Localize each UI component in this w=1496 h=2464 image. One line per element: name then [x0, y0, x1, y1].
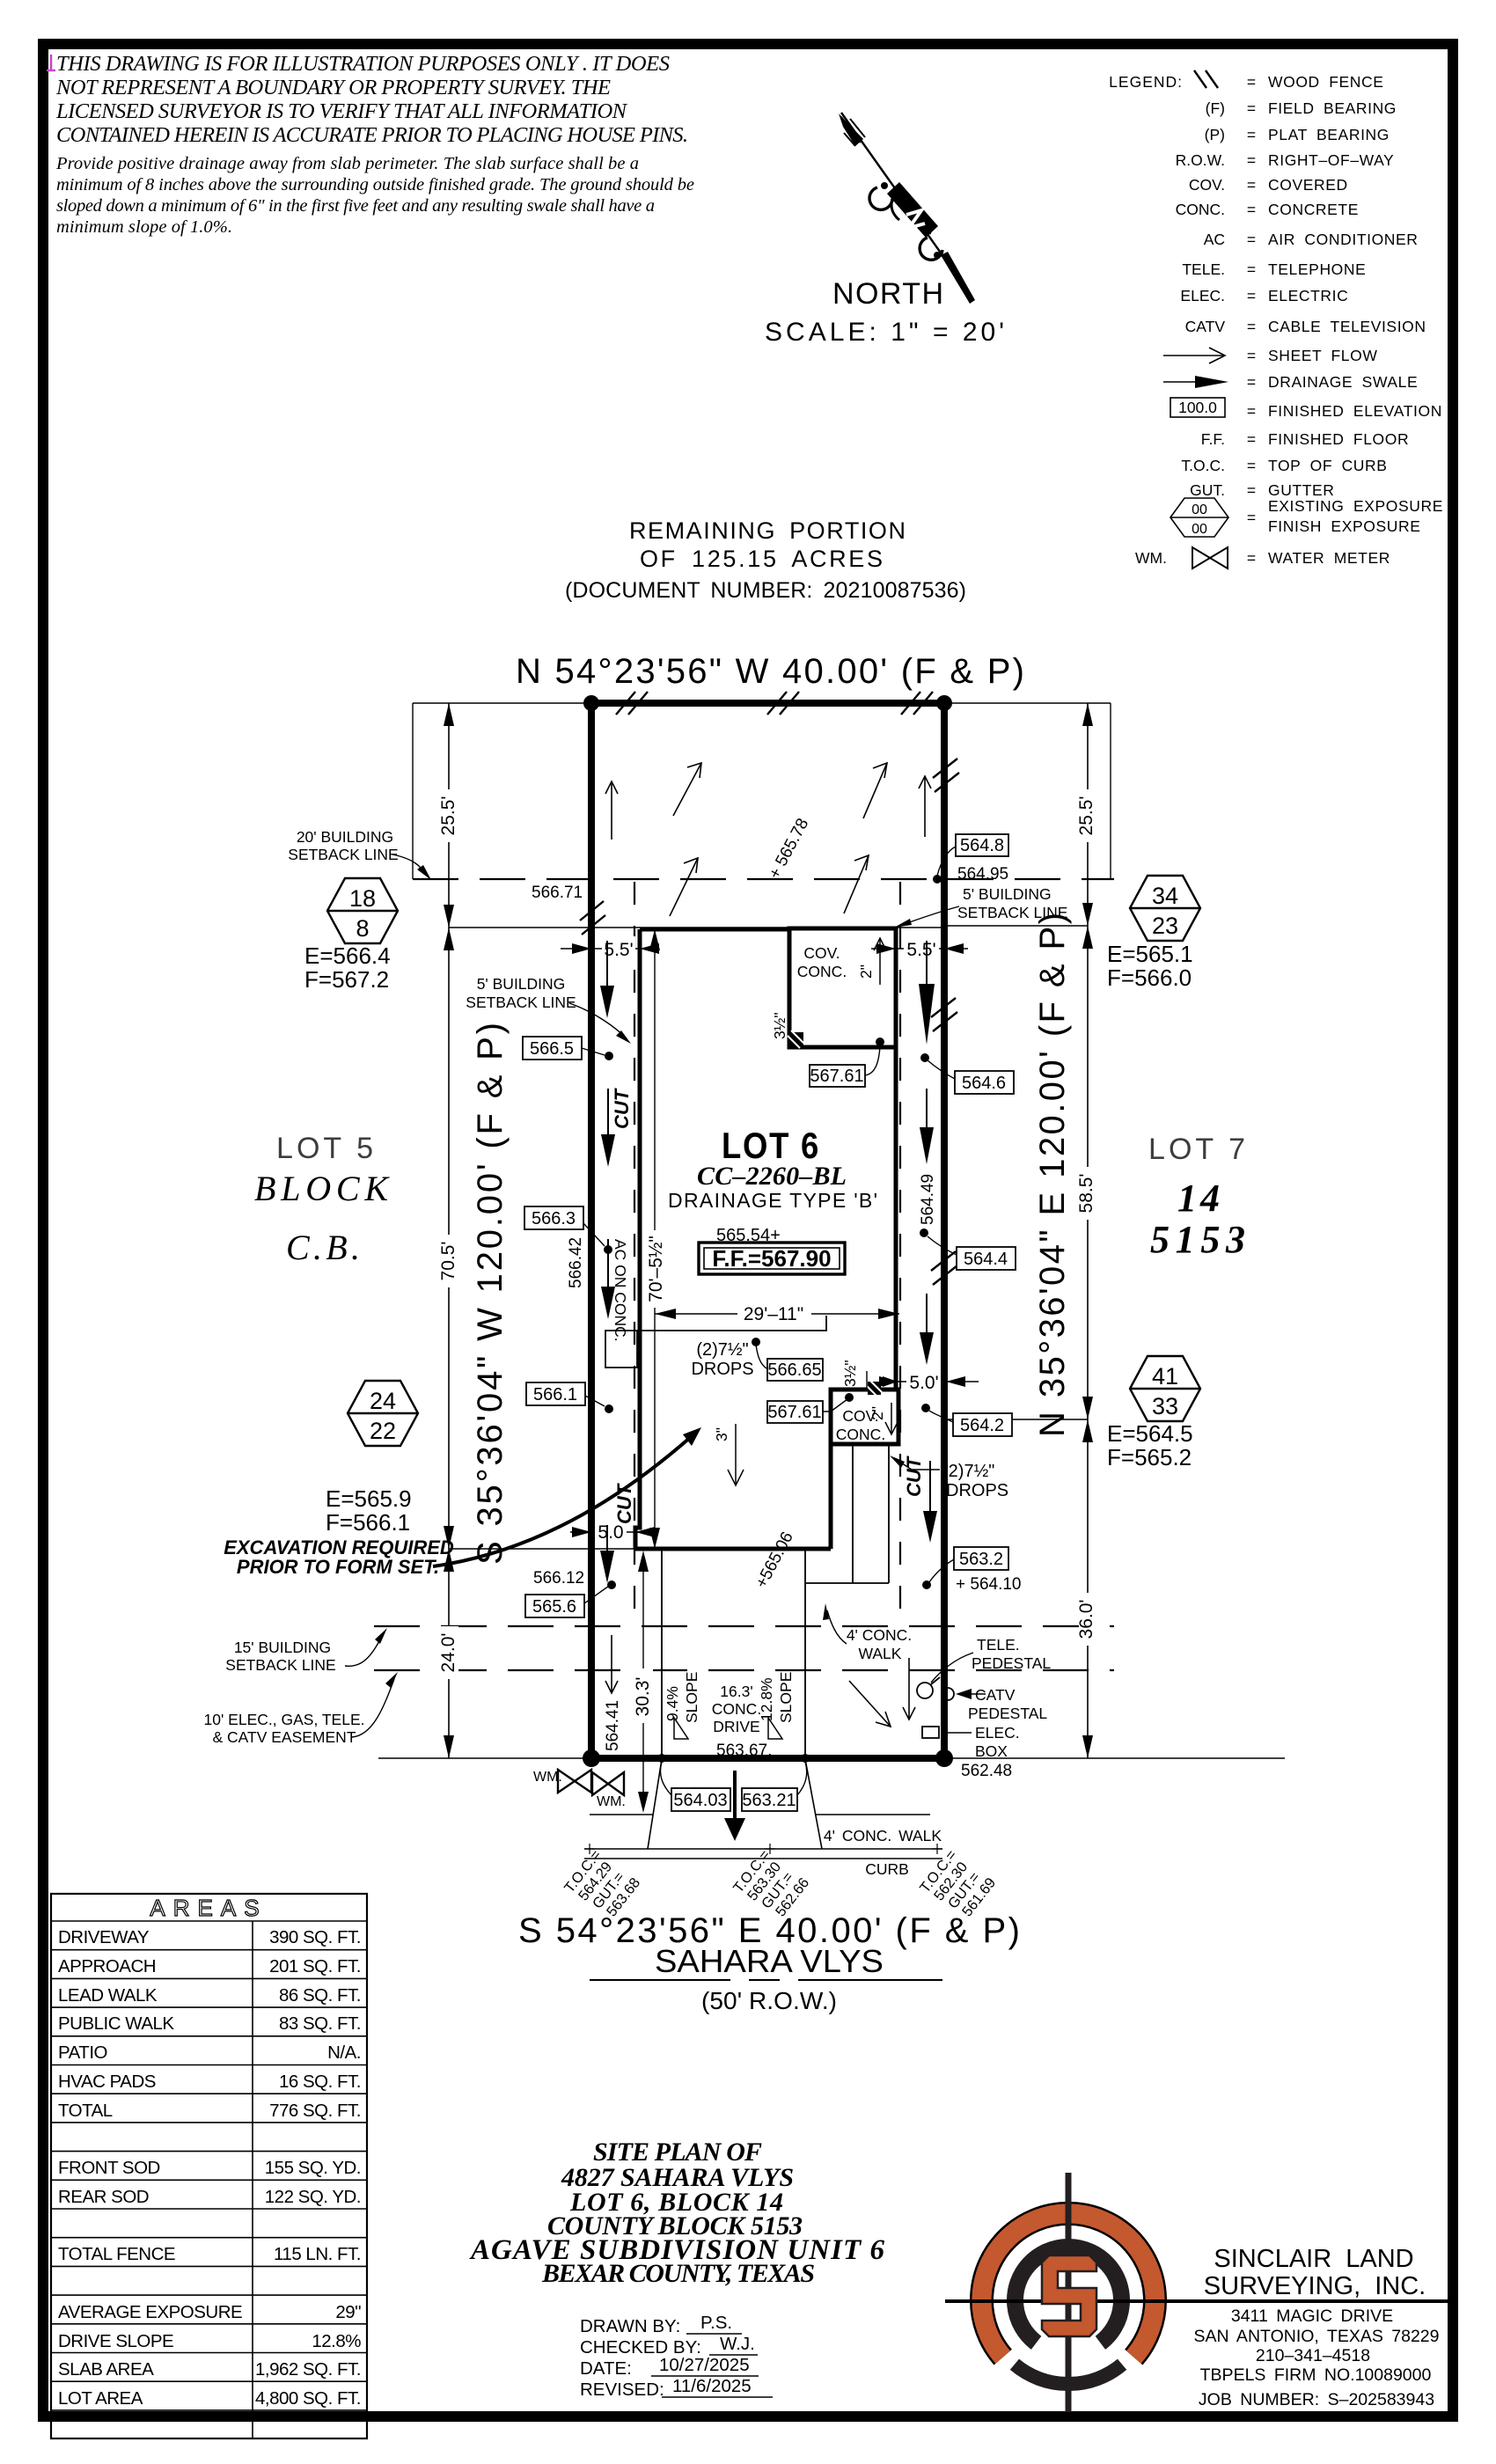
svg-text:=: =: [1247, 347, 1256, 364]
svg-text:E=565.1: E=565.1: [1107, 941, 1193, 967]
svg-text:(2)7½": (2)7½": [696, 1340, 748, 1360]
svg-text:E=564.5: E=564.5: [1107, 1420, 1193, 1447]
svg-text:COVERED: COVERED: [1268, 176, 1348, 194]
svg-text:3½": 3½": [841, 1360, 859, 1387]
svg-text:+565.06: +565.06: [752, 1529, 797, 1591]
svg-text:SCALE: 1" = 20': SCALE: 1" = 20': [765, 318, 1004, 347]
svg-text:LEAD WALK: LEAD WALK: [58, 1985, 158, 2006]
svg-text:15' BUILDING: 15' BUILDING: [234, 1639, 331, 1656]
svg-text:AVERAGE EXPOSURE: AVERAGE EXPOSURE: [58, 2302, 242, 2322]
svg-text:10' ELEC., GAS, TELE.: 10' ELEC., GAS, TELE.: [204, 1711, 365, 1728]
svg-text:390 SQ. FT.: 390 SQ. FT.: [269, 1927, 361, 1947]
svg-text:=: =: [1247, 457, 1256, 474]
svg-text:=: =: [1247, 549, 1256, 567]
svg-text:(50' R.O.W.): (50' R.O.W.): [701, 1987, 837, 2014]
svg-text:CURB: CURB: [865, 1860, 909, 1878]
svg-text:TOTAL FENCE: TOTAL FENCE: [58, 2244, 175, 2264]
svg-text:TOP OF CURB: TOP OF CURB: [1268, 457, 1388, 474]
svg-text:565.6: 565.6: [532, 1597, 576, 1617]
svg-text:115 LN. FT.: 115 LN. FT.: [274, 2244, 361, 2264]
svg-text:SHEET FLOW: SHEET FLOW: [1268, 347, 1377, 364]
svg-text:+ 565.78: + 565.78: [766, 816, 813, 883]
svg-text:WOOD FENCE: WOOD FENCE: [1268, 73, 1384, 91]
svg-text:FINISH EXPOSURE: FINISH EXPOSURE: [1268, 517, 1420, 535]
svg-text:F.F.=567.90: F.F.=567.90: [712, 1245, 831, 1272]
svg-text:18: 18: [349, 885, 376, 912]
svg-text:4' CONC. WALK: 4' CONC. WALK: [824, 1827, 942, 1844]
svg-text:N 54°23'56" W 40.00' (F & P): N 54°23'56" W 40.00' (F & P): [516, 652, 1024, 691]
svg-text:SAN ANTONIO, TEXAS 78229: SAN ANTONIO, TEXAS 78229: [1194, 2327, 1440, 2346]
svg-text:TELE.: TELE.: [1182, 260, 1225, 278]
svg-text:WM.: WM.: [597, 1794, 626, 1809]
svg-text:25.5': 25.5': [1076, 796, 1096, 836]
svg-text:24.0': 24.0': [438, 1633, 458, 1673]
svg-text:5.0: 5.0: [598, 1522, 623, 1543]
svg-text:70.5': 70.5': [438, 1242, 458, 1281]
svg-text:566.1: 566.1: [533, 1385, 577, 1404]
svg-text:CONCRETE: CONCRETE: [1268, 201, 1359, 218]
svg-text:(F): (F): [1206, 99, 1225, 117]
svg-text:5' BUILDING: 5' BUILDING: [477, 975, 566, 993]
svg-text:23: 23: [1152, 913, 1178, 939]
svg-text:BEXAR COUNTY, TEXAS: BEXAR COUNTY, TEXAS: [541, 2259, 815, 2288]
svg-text:564.2: 564.2: [960, 1416, 1004, 1435]
svg-text:SLOPE: SLOPE: [683, 1672, 700, 1723]
svg-text:562.48: 562.48: [961, 1762, 1012, 1780]
svg-text:LICENSED SURVEYOR IS TO VERIFY: LICENSED SURVEYOR IS TO VERIFY THAT ALL …: [55, 99, 628, 123]
svg-text:WM.: WM.: [1135, 549, 1167, 567]
svg-text:3411 MAGIC DRIVE: 3411 MAGIC DRIVE: [1231, 2306, 1393, 2326]
svg-text:APPROACH: APPROACH: [58, 1956, 156, 1976]
svg-text:=: =: [1247, 99, 1256, 117]
svg-text:201 SQ. FT.: 201 SQ. FT.: [269, 1956, 361, 1976]
svg-text:DROPS: DROPS: [946, 1481, 1008, 1500]
svg-text:86 SQ. FT.: 86 SQ. FT.: [279, 1985, 361, 2006]
svg-text:TBPELS FIRM NO.10089000: TBPELS FIRM NO.10089000: [1200, 2365, 1432, 2385]
svg-text:210–341–4518: 210–341–4518: [1256, 2346, 1370, 2365]
svg-text:5.5': 5.5': [604, 940, 633, 960]
svg-text:SLOPE: SLOPE: [777, 1672, 795, 1723]
svg-text:00: 00: [1192, 522, 1207, 537]
svg-text:SINCLAIR LAND: SINCLAIR LAND: [1214, 2245, 1413, 2273]
svg-text:29'–11": 29'–11": [744, 1304, 803, 1324]
svg-text:N 35°36'04" E 120.00' (F & P): N 35°36'04" E 120.00' (F & P): [1033, 913, 1072, 1437]
svg-text:2": 2": [857, 964, 875, 979]
svg-text:16.3': 16.3': [720, 1683, 752, 1700]
svg-text:11/6/2025: 11/6/2025: [672, 2376, 752, 2396]
svg-text:FINISHED FLOOR: FINISHED FLOOR: [1268, 430, 1409, 448]
svg-text:LEGEND:: LEGEND:: [1109, 73, 1183, 91]
svg-text:BOX: BOX: [975, 1742, 1008, 1760]
svg-text:W.J.: W.J.: [720, 2334, 755, 2354]
svg-text:567.61: 567.61: [767, 1403, 821, 1422]
svg-text:DRIVEWAY: DRIVEWAY: [58, 1927, 150, 1947]
svg-text:122 SQ. YD.: 122 SQ. YD.: [265, 2187, 361, 2207]
svg-text:PRIOR TO FORM SET.: PRIOR TO FORM SET.: [237, 1556, 439, 1578]
svg-text:EXISTING EXPOSURE: EXISTING EXPOSURE: [1268, 497, 1443, 515]
svg-text:SETBACK LINE: SETBACK LINE: [225, 1656, 335, 1674]
svg-text:JOB NUMBER: S–202583943: JOB NUMBER: S–202583943: [1199, 2390, 1434, 2409]
svg-text:REAR SOD: REAR SOD: [58, 2187, 149, 2207]
svg-text:29": 29": [335, 2302, 361, 2322]
svg-text:CONC.: CONC.: [1176, 201, 1225, 218]
svg-text:12.8%: 12.8%: [312, 2331, 361, 2351]
svg-text:F=566.0: F=566.0: [1107, 964, 1192, 991]
svg-text:LOT 6: LOT 6: [722, 1125, 820, 1166]
svg-text:CONC.: CONC.: [712, 1700, 761, 1718]
svg-text:LOT 5: LOT 5: [276, 1132, 373, 1165]
svg-text:R.O.W.: R.O.W.: [1176, 151, 1225, 169]
svg-text:WM.: WM.: [533, 1770, 562, 1785]
svg-text:FINISHED ELEVATION: FINISHED ELEVATION: [1268, 402, 1442, 420]
svg-text:8: 8: [356, 915, 369, 942]
svg-text:566.5: 566.5: [530, 1039, 574, 1059]
svg-text:=: =: [1247, 287, 1256, 304]
svg-text:CABLE TELEVISION: CABLE TELEVISION: [1268, 318, 1426, 335]
svg-text:BLOCK: BLOCK: [254, 1169, 390, 1208]
svg-text:564.4: 564.4: [964, 1250, 1008, 1269]
svg-text:CONC.: CONC.: [836, 1426, 885, 1443]
svg-text:155 SQ. YD.: 155 SQ. YD.: [265, 2158, 361, 2178]
svg-text:=: =: [1247, 402, 1256, 420]
svg-text:566.3: 566.3: [532, 1209, 576, 1228]
svg-text:=: =: [1247, 430, 1256, 448]
svg-text:1,962 SQ. FT.: 1,962 SQ. FT.: [255, 2359, 361, 2380]
svg-text:LOT 7: LOT 7: [1148, 1133, 1245, 1166]
svg-text:GUT.: GUT.: [1190, 481, 1225, 499]
svg-text:minimum of 8 inches above the: minimum of 8 inches above the surroundin…: [56, 175, 694, 194]
svg-text:DROPS: DROPS: [691, 1360, 753, 1379]
svg-text:22: 22: [370, 1418, 396, 1444]
svg-text:=: =: [1247, 231, 1256, 248]
svg-text:E=565.9: E=565.9: [326, 1485, 412, 1512]
svg-text:SETBACK LINE: SETBACK LINE: [957, 904, 1067, 921]
svg-text:DRAINAGE SWALE: DRAINAGE SWALE: [1268, 373, 1418, 391]
svg-text:+ 564.10: + 564.10: [956, 1575, 1022, 1594]
svg-text:Provide positive drainage away: Provide positive drainage away from slab…: [55, 154, 639, 173]
svg-text:5' BUILDING: 5' BUILDING: [963, 885, 1052, 903]
svg-text:WALK: WALK: [859, 1645, 902, 1662]
svg-text:SETBACK LINE: SETBACK LINE: [466, 994, 576, 1011]
svg-text:=: =: [1247, 201, 1256, 218]
svg-text:83 SQ. FT.: 83 SQ. FT.: [279, 2013, 361, 2034]
svg-text:DRIVE: DRIVE: [713, 1718, 759, 1735]
svg-text:9.4%: 9.4%: [664, 1686, 681, 1721]
svg-text:PEDESTAL: PEDESTAL: [972, 1654, 1051, 1672]
svg-text:70'–5½": 70'–5½": [646, 1236, 666, 1302]
svg-text:24: 24: [370, 1388, 396, 1414]
svg-text:=: =: [1247, 318, 1256, 335]
svg-text:ELEC.: ELEC.: [975, 1724, 1020, 1742]
svg-text:PLAT BEARING: PLAT BEARING: [1268, 126, 1390, 143]
svg-text:(DOCUMENT NUMBER: 2021008753: (DOCUMENT NUMBER: 20210087536): [565, 578, 966, 603]
svg-text:ELEC.: ELEC.: [1180, 287, 1225, 304]
svg-text:25.5': 25.5': [438, 796, 458, 836]
svg-text:5153: 5153: [1150, 1218, 1245, 1261]
svg-text:CATV: CATV: [1185, 318, 1226, 335]
svg-text:16 SQ. FT.: 16 SQ. FT.: [279, 2072, 361, 2092]
svg-text:WATER METER: WATER METER: [1268, 549, 1390, 567]
svg-text:C.B.: C.B.: [286, 1228, 360, 1267]
svg-text:=: =: [1247, 176, 1256, 194]
svg-text:=: =: [1247, 509, 1256, 526]
svg-text:TOTAL: TOTAL: [58, 2101, 113, 2121]
svg-text:14: 14: [1177, 1177, 1220, 1220]
svg-text:COV.: COV.: [803, 944, 840, 962]
svg-text:CUT: CUT: [611, 1088, 633, 1129]
svg-text:AREAS: AREAS: [150, 1895, 267, 1921]
svg-text:CC–2260–BL: CC–2260–BL: [697, 1162, 847, 1191]
svg-text:564.49: 564.49: [919, 1174, 937, 1225]
svg-text:DRAWN BY:: DRAWN BY:: [580, 2316, 680, 2336]
svg-text:4,800 SQ. FT.: 4,800 SQ. FT.: [255, 2388, 361, 2409]
svg-text:CUT: CUT: [903, 1456, 925, 1497]
svg-text:564.95: 564.95: [957, 865, 1008, 884]
svg-text:FRONT SOD: FRONT SOD: [58, 2158, 160, 2178]
svg-text:F.F.: F.F.: [1201, 430, 1225, 448]
svg-text:33: 33: [1152, 1393, 1178, 1419]
svg-text:OF 125.15 ACRES: OF 125.15 ACRES: [640, 546, 883, 572]
svg-text:20' BUILDING: 20' BUILDING: [297, 828, 393, 846]
svg-text:P.S.: P.S.: [700, 2313, 732, 2333]
svg-text:PATIO: PATIO: [58, 2042, 107, 2063]
svg-text:COV.: COV.: [1189, 176, 1225, 194]
svg-text:(2)7½": (2)7½": [942, 1462, 994, 1481]
svg-text:AIR CONDITIONER: AIR CONDITIONER: [1268, 231, 1419, 248]
svg-text:100.0: 100.0: [1178, 399, 1217, 416]
svg-text:41: 41: [1152, 1363, 1178, 1390]
svg-text:34: 34: [1152, 883, 1178, 909]
svg-text:TELEPHONE: TELEPHONE: [1268, 260, 1366, 278]
svg-text:T.O.C.: T.O.C.: [1181, 457, 1225, 474]
svg-text:564.41: 564.41: [604, 1700, 622, 1751]
svg-text:SETBACK LINE: SETBACK LINE: [288, 846, 398, 863]
svg-text:566.12: 566.12: [533, 1569, 584, 1588]
svg-text:FIELD BEARING: FIELD BEARING: [1268, 99, 1397, 117]
svg-text:PUBLIC WALK: PUBLIC WALK: [58, 2013, 174, 2034]
svg-text:566.71: 566.71: [532, 884, 583, 902]
svg-text:36.0': 36.0': [1076, 1600, 1096, 1639]
svg-text:4' CONC.: 4' CONC.: [847, 1626, 912, 1644]
svg-text:5.5': 5.5': [906, 940, 935, 960]
svg-text:5.0': 5.0': [909, 1373, 938, 1393]
svg-text:F=565.2: F=565.2: [1107, 1444, 1192, 1470]
svg-text:TELE.: TELE.: [977, 1636, 1020, 1654]
svg-text:CATV: CATV: [975, 1686, 1016, 1704]
svg-text:ELECTRIC: ELECTRIC: [1268, 287, 1348, 304]
svg-text:LOT AREA: LOT AREA: [58, 2388, 143, 2409]
svg-text:THIS DRAWING IS FOR ILLUSTRATI: THIS DRAWING IS FOR ILLUSTRATION PURPOSE…: [56, 52, 670, 76]
svg-text:CONC.: CONC.: [797, 963, 847, 980]
svg-text:00: 00: [1192, 502, 1207, 517]
svg-text:10/27/2025: 10/27/2025: [659, 2355, 750, 2375]
svg-text:HVAC PADS: HVAC PADS: [58, 2072, 156, 2092]
svg-text:AC: AC: [1204, 231, 1225, 248]
svg-text:DRAINAGE TYPE 'B': DRAINAGE TYPE 'B': [668, 1189, 877, 1212]
svg-text:58.5': 58.5': [1076, 1174, 1096, 1214]
svg-text:SAHARA VLYS: SAHARA VLYS: [655, 1943, 884, 1979]
svg-text:564.6: 564.6: [962, 1074, 1006, 1093]
svg-text:& CATV EASEMENT: & CATV EASEMENT: [212, 1728, 356, 1746]
svg-text:=: =: [1247, 151, 1256, 169]
svg-text:2": 2": [869, 1406, 886, 1420]
svg-text:NORTH: NORTH: [832, 277, 943, 311]
svg-text:=: =: [1247, 73, 1256, 91]
svg-text:F=566.1: F=566.1: [326, 1509, 410, 1536]
svg-text:REMAINING PORTION: REMAINING PORTION: [629, 517, 906, 544]
svg-text:=: =: [1247, 481, 1256, 499]
svg-text:563.21: 563.21: [742, 1791, 796, 1810]
svg-text:REVISED:: REVISED:: [580, 2380, 664, 2400]
svg-text:DATE:: DATE:: [580, 2358, 632, 2379]
svg-text:S 35°36'04" W 120.00' (F & P): S 35°36'04" W 120.00' (F & P): [471, 1023, 510, 1565]
svg-text:3½": 3½": [771, 1012, 788, 1039]
svg-text:=: =: [1247, 260, 1256, 278]
svg-text:(P): (P): [1205, 126, 1225, 143]
svg-text:563.67.: 563.67.: [716, 1742, 772, 1760]
svg-text:CONTAINED HEREIN IS ACCURATE P: CONTAINED HEREIN IS ACCURATE PRIOR TO PL…: [56, 123, 688, 147]
svg-text:F=567.2: F=567.2: [304, 966, 389, 993]
svg-text:566.65: 566.65: [767, 1360, 821, 1380]
svg-text:PEDESTAL: PEDESTAL: [968, 1705, 1047, 1722]
svg-text:=: =: [1247, 373, 1256, 391]
svg-text:RIGHT–OF–WAY: RIGHT–OF–WAY: [1268, 151, 1394, 169]
svg-text:E=566.4: E=566.4: [304, 942, 391, 969]
svg-text:563.2: 563.2: [959, 1550, 1003, 1569]
svg-text:DRIVE SLOPE: DRIVE SLOPE: [58, 2331, 173, 2351]
svg-text:30.3': 30.3': [633, 1677, 653, 1717]
svg-text:776 SQ. FT.: 776 SQ. FT.: [269, 2101, 361, 2121]
svg-text:567.61: 567.61: [810, 1067, 863, 1086]
svg-text:564.8: 564.8: [960, 836, 1004, 855]
svg-text:3": 3": [713, 1427, 730, 1441]
svg-text:=: =: [1247, 126, 1256, 143]
svg-text:566.42: 566.42: [567, 1237, 585, 1288]
svg-text:minimum slope of 1.0%.: minimum slope of 1.0%.: [56, 217, 232, 237]
svg-text:564.03: 564.03: [673, 1791, 727, 1810]
svg-text:12.8%: 12.8%: [758, 1677, 775, 1721]
svg-text:sloped down a minimum of 6" in: sloped down a minimum of 6" in the first…: [56, 196, 655, 216]
svg-text:GUTTER: GUTTER: [1268, 481, 1335, 499]
svg-text:SLAB AREA: SLAB AREA: [58, 2359, 154, 2380]
svg-text:N/A.: N/A.: [327, 2042, 361, 2063]
svg-text:SURVEYING, INC.: SURVEYING, INC.: [1204, 2272, 1426, 2300]
svg-text:NOT REPRESENT A BOUNDARY OR PR: NOT REPRESENT A BOUNDARY OR PROPERTY SUR…: [55, 76, 611, 99]
